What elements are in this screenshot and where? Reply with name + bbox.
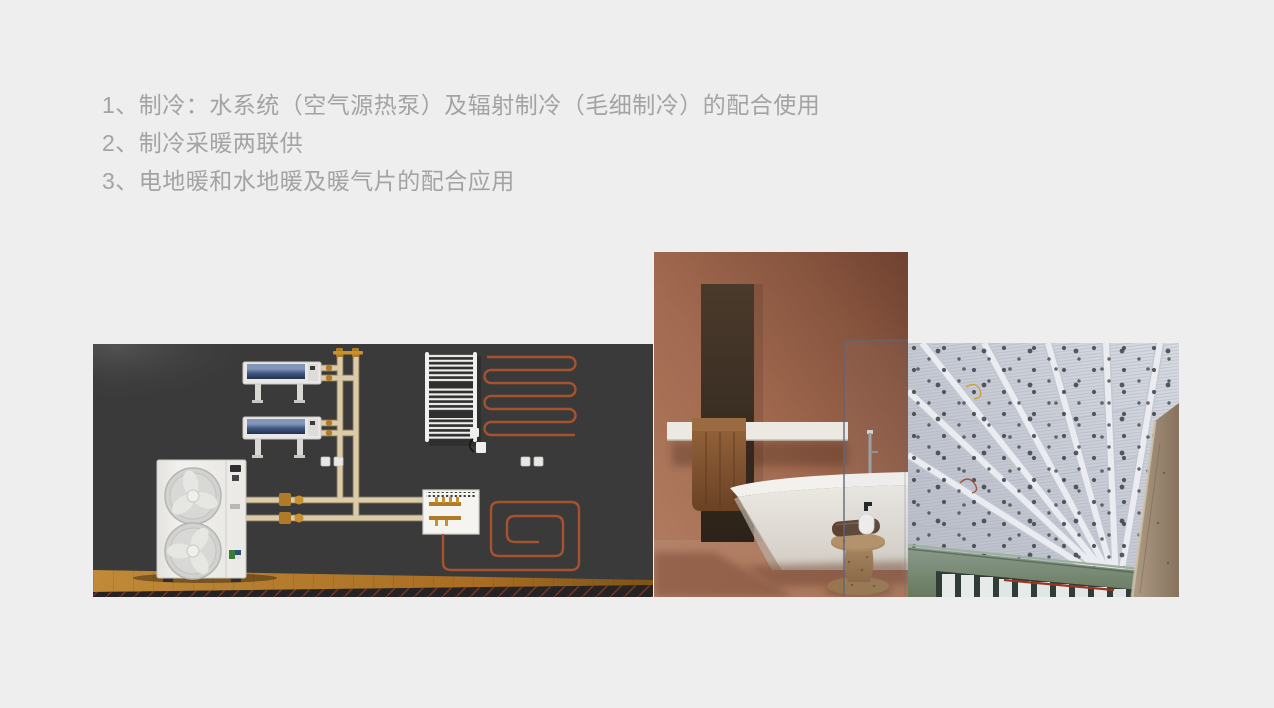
air-source-heat-pump	[157, 460, 246, 582]
fan-top	[165, 468, 221, 524]
fan-bottom	[165, 523, 221, 579]
capillary-ceiling-photo	[908, 343, 1179, 597]
bullet-line-2: 2、制冷采暖两联供	[102, 124, 1002, 162]
bullet-list: 1、制冷：水系统（空气源热泵）及辐射制冷（毛细制冷）的配合使用 2、制冷采暖两联…	[102, 86, 1002, 200]
presentation-slide: 1、制冷：水系统（空气源热泵）及辐射制冷（毛细制冷）的配合使用 2、制冷采暖两联…	[0, 0, 1274, 708]
bullet-line-3: 3、电地暖和水地暖及暖气片的配合应用	[102, 162, 1002, 200]
hvac-system-image	[93, 344, 653, 597]
bathroom-photo	[654, 252, 908, 597]
glass-panel	[844, 340, 908, 597]
bullet-line-1: 1、制冷：水系统（空气源热泵）及辐射制冷（毛细制冷）的配合使用	[102, 86, 1002, 124]
towel-radiator	[425, 352, 486, 453]
manifold-box	[423, 490, 479, 534]
